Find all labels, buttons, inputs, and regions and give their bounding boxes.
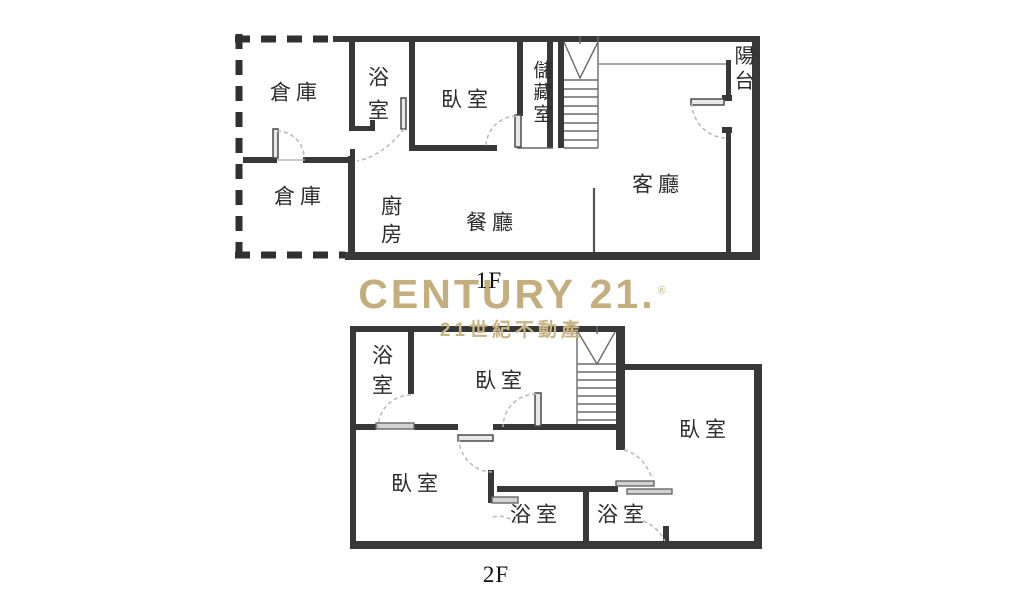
room-label-bedroom-top-2f: 臥室: [475, 371, 527, 392]
stairs-1f: [564, 36, 598, 148]
room-label-bathroom-top-2f: 浴室: [371, 344, 392, 404]
brand-tagline: 21世紀不動產: [0, 321, 1024, 340]
door-leaves-2f: [458, 393, 541, 441]
brand-logo: CENTURY 21.®: [0, 274, 1024, 315]
door-leaf-bedroom-left-2f: [458, 435, 493, 441]
room-label-bathroom-right-2f: 浴室: [597, 505, 649, 526]
sliding-door-bathroom-right-2f: [627, 489, 672, 494]
sliding-door-bedroom-right-2f: [616, 481, 654, 486]
stairs-direction-arrow-1f: [564, 42, 598, 78]
room-label-bedroom-1f: 臥室: [441, 90, 493, 111]
floor2-label: 2F: [483, 562, 509, 588]
room-label-balcony-1f: 陽台: [732, 45, 752, 95]
door-leaf-bathroom-1f: [401, 98, 406, 129]
room-label-bedroom-right-2f: 臥室: [679, 420, 731, 441]
room-label-living-room-1f: 客廳: [632, 175, 684, 196]
door-leaf-storage-1f: [273, 129, 278, 158]
brand-logo-text: CENTURY 21.: [358, 271, 655, 317]
room-label-dining-room-1f: 餐廳: [466, 213, 518, 234]
registered-mark-icon: ®: [658, 285, 666, 297]
door-leaf-bedroom-top-2f: [535, 393, 541, 426]
sliding-door-bathroom-top-2f: [376, 423, 414, 429]
room-label-storage-room-1f: 儲藏室: [532, 60, 551, 126]
room-label-bedroom-left-2f: 臥室: [391, 474, 443, 495]
room-label-bathroom-middle-2f: 浴室: [510, 505, 562, 526]
door-arcs-1f: [277, 103, 727, 161]
room-label-bathroom-1f: 浴室: [367, 66, 388, 132]
door-leaf-balcony-1f: [691, 99, 724, 105]
room-label-kitchen-1f: 廚房: [380, 195, 401, 251]
door-leaf-storage-room-1f: [515, 115, 521, 147]
annex-dashed-walls-1f: [235, 34, 345, 259]
door-leaves-1f: [273, 98, 724, 158]
room-label-storage-lower-1f: 倉庫: [274, 187, 326, 208]
floorplan-image: CENTURY 21.® 21世紀不動產 1F 2F 倉庫 倉庫 浴室 臥室 儲…: [0, 0, 1024, 610]
room-label-storage-upper-1f: 倉庫: [270, 83, 322, 104]
floor1-label: 1F: [476, 268, 502, 294]
